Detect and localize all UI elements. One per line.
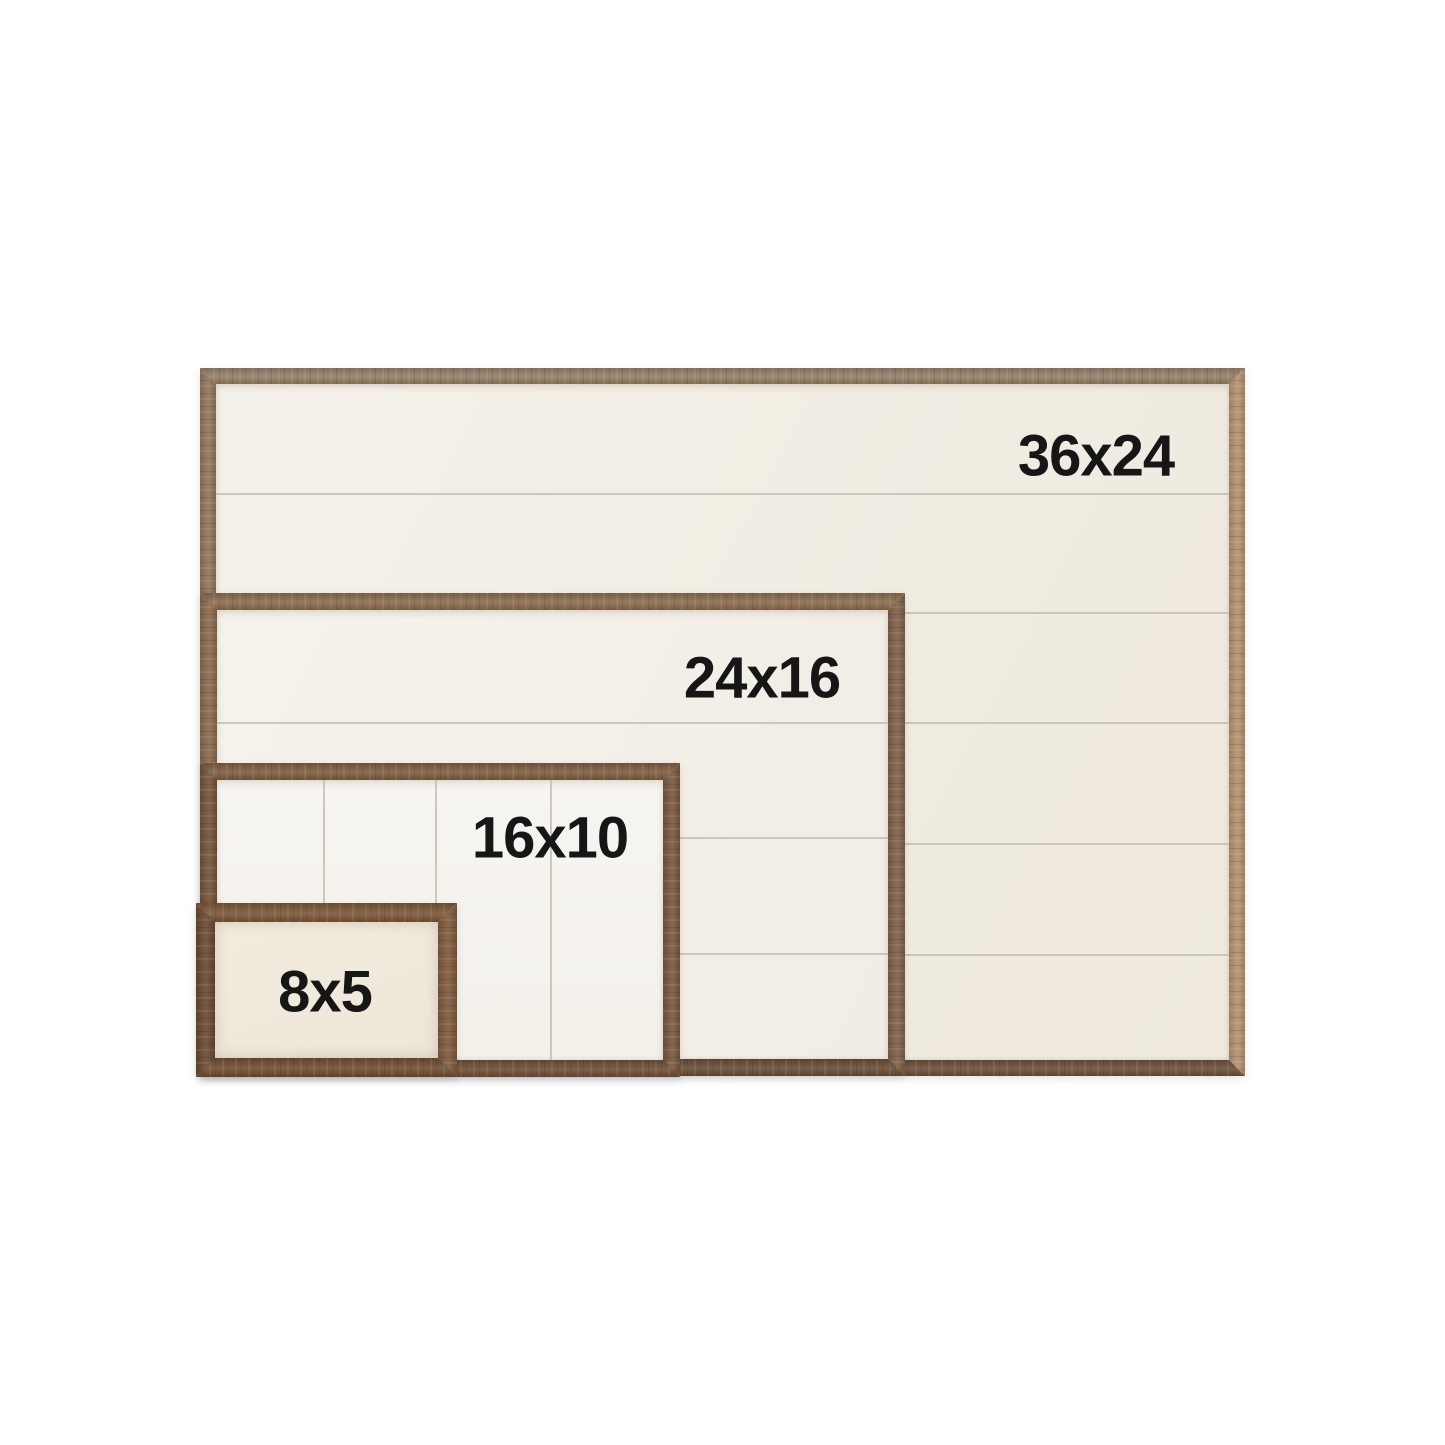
- frame-rail-top: [196, 903, 457, 922]
- size-label-36x24: 36x24: [1018, 423, 1174, 490]
- size-label-16x10: 16x10: [472, 805, 628, 872]
- frame-rail-left: [196, 903, 215, 1077]
- size-label-24x16: 24x16: [684, 645, 840, 712]
- frame-rail-top: [200, 368, 1245, 384]
- frame-rail-top: [200, 763, 680, 780]
- frame-8x5: 8x5: [196, 903, 457, 1077]
- frame-size-comparison-image: 36x24 24x16 16x10 8x5: [0, 0, 1445, 1445]
- frame-rail-right: [663, 763, 680, 1077]
- frame-rail-top: [200, 593, 905, 610]
- plank-seam: [216, 493, 1229, 495]
- frame-rail-right: [1229, 368, 1245, 1076]
- frame-rail-bottom: [196, 1058, 457, 1077]
- size-label-8x5: 8x5: [278, 959, 372, 1026]
- frame-rail-right: [888, 593, 905, 1076]
- plank-seam: [217, 722, 888, 724]
- frame-rail-right: [438, 903, 457, 1077]
